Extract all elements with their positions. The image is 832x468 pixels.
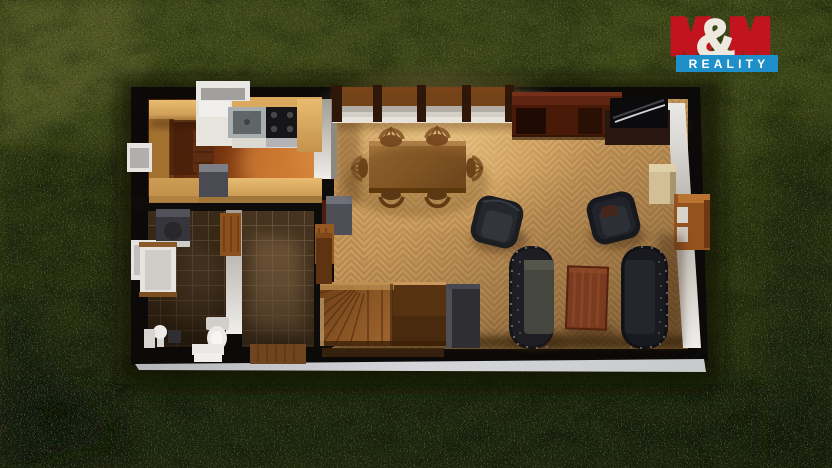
svg-text:REALITY: REALITY (689, 57, 770, 71)
